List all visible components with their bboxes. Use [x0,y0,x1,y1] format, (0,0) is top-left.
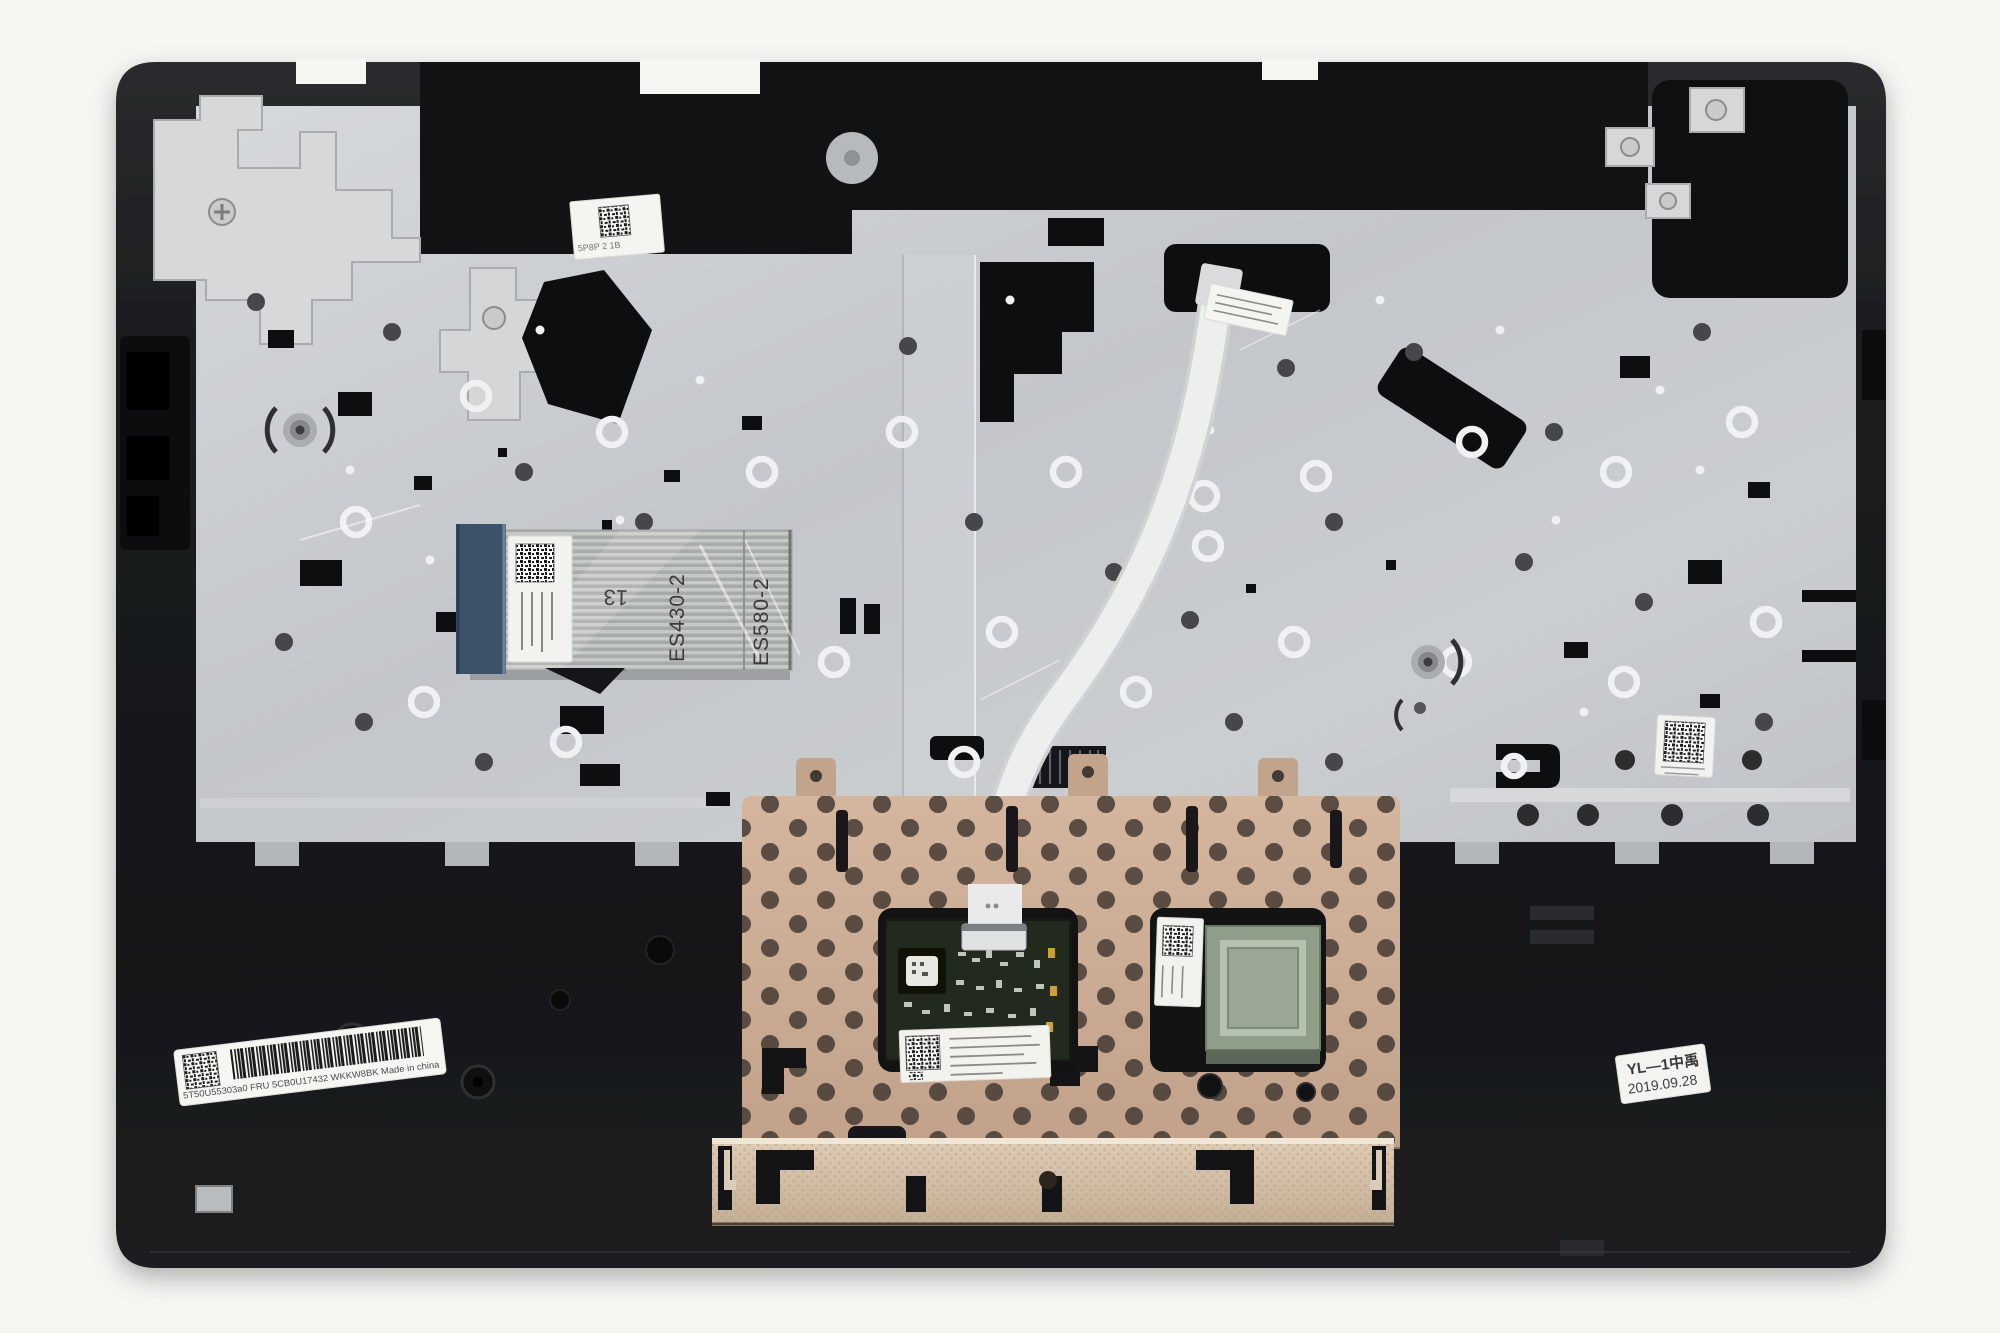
touchpad-info-label [899,1025,1051,1082]
cable-marking-es430: ES430-2 [666,573,689,662]
top-left-qr-sticker: 5P8P 2 1B [570,194,665,260]
cable-connector-stiffener [456,524,506,674]
touchpad-assembly [712,754,1400,1226]
module-qr-label [1154,917,1203,1007]
palmrest-photo-stage: ES430-2 ES580-2 13 [0,0,2000,1333]
bracket-screw [209,199,235,225]
touchpad-bottom-bracket [712,1138,1394,1226]
cable-qr-label [508,536,572,662]
keyboard-ribbon-cable: ES430-2 ES580-2 13 [456,524,800,694]
palmrest-photo: ES430-2 ES580-2 13 [0,0,2000,1333]
plate-qr-sticker [1654,715,1715,778]
cable-marking-es580: ES580-2 [750,577,773,666]
touchpad-module-window [1150,908,1326,1072]
controller-chip-label [906,956,938,986]
cable-marking-13: 13 [603,585,628,611]
touchpad-cable-connector [962,884,1026,950]
